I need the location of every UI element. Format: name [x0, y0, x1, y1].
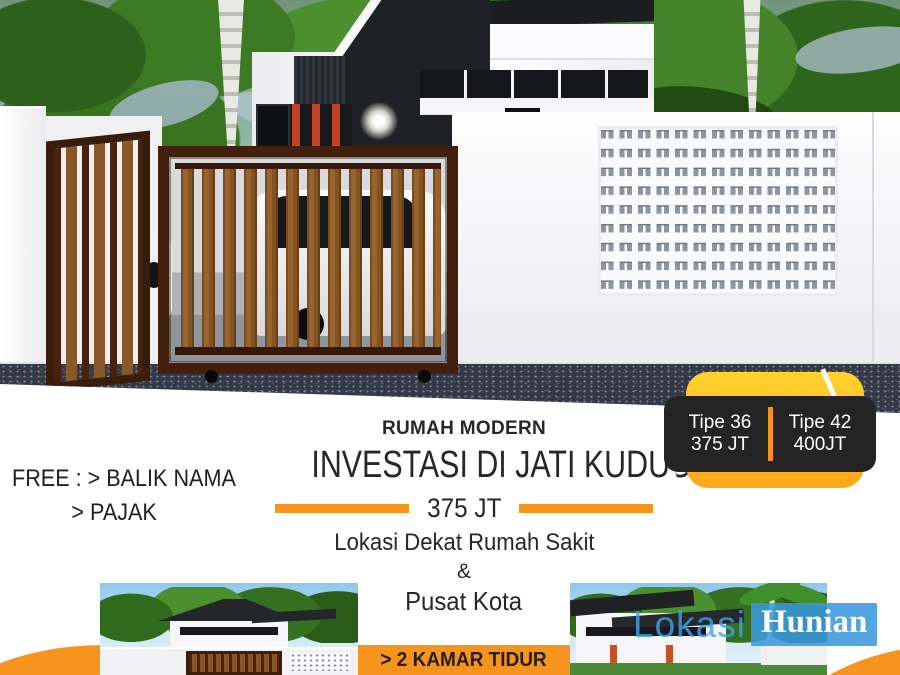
accent-bar-left: [275, 504, 409, 513]
price-text: 375 JT: [427, 493, 501, 524]
dark-siding-panel: [294, 56, 346, 106]
kicker-text: RUMAH MODERN: [264, 418, 664, 440]
fence-wall-edge: [872, 112, 874, 378]
features-banner-text: > 2 KAMAR TIDUR: [381, 649, 547, 672]
type-42-price: 400JT: [774, 434, 866, 456]
thumbnail-gate: [186, 651, 282, 675]
free-offer-line-2: > PAJAK: [12, 496, 228, 530]
location-line-1: Lokasi Dekat Rumah Sakit: [264, 529, 664, 557]
wooden-sliding-gate: [158, 146, 458, 374]
clerestory-windows: [420, 70, 648, 100]
gate-top-rail: [175, 163, 441, 169]
type-36-cell: Tipe 36 375 JT: [674, 412, 766, 456]
price-row: 375 JT: [264, 493, 664, 524]
property-flyer: Tipe 36 375 JT Tipe 42 400JT RUMAH MODER…: [0, 0, 900, 675]
watermark: Lokasi Hunian: [633, 603, 877, 646]
watermark-word-2-box: Hunian: [751, 603, 877, 646]
free-offer-block: FREE : > BALIK NAMA > PAJAK: [12, 462, 252, 530]
thumbnail-fence: [761, 643, 827, 665]
gate-bottom-rail: [175, 347, 441, 355]
wall-lamp-glow: [360, 102, 398, 140]
type-42-cell: Tipe 42 400JT: [774, 412, 866, 456]
window-red-curtains: [288, 104, 352, 152]
badge-dark-plate: Tipe 36 375 JT Tipe 42 400JT: [664, 396, 876, 472]
type-36-price: 375 JT: [674, 434, 766, 456]
type-36-label: Tipe 36: [674, 412, 766, 434]
window: [256, 104, 290, 150]
thumbnail-window-strip: [180, 627, 278, 635]
badge-divider: [768, 407, 773, 461]
gate-caster-wheel: [418, 370, 431, 383]
thumbnail-breeze-panel: [290, 653, 350, 671]
ampersand: &: [264, 560, 664, 584]
thumbnail-house-front: [100, 583, 358, 675]
breeze-block-panel: [598, 126, 838, 296]
main-title: INVESTASI DI JATI KUDUS: [264, 444, 664, 487]
fence-pillar: [0, 106, 46, 386]
accent-bar-right: [519, 504, 653, 513]
gate-wood-slats: [175, 165, 441, 355]
watermark-word-1: Lokasi: [633, 604, 746, 646]
features-banner: > 2 KAMAR TIDUR: [358, 645, 570, 675]
free-offer-line-1: FREE : > BALIK NAMA: [12, 462, 228, 496]
open-gate-leaf: [46, 131, 150, 392]
type-42-label: Tipe 42: [774, 412, 866, 434]
price-type-badge: Tipe 36 375 JT Tipe 42 400JT: [650, 364, 890, 504]
gate-caster-wheel: [205, 370, 218, 383]
watermark-word-2: Hunian: [761, 604, 867, 640]
